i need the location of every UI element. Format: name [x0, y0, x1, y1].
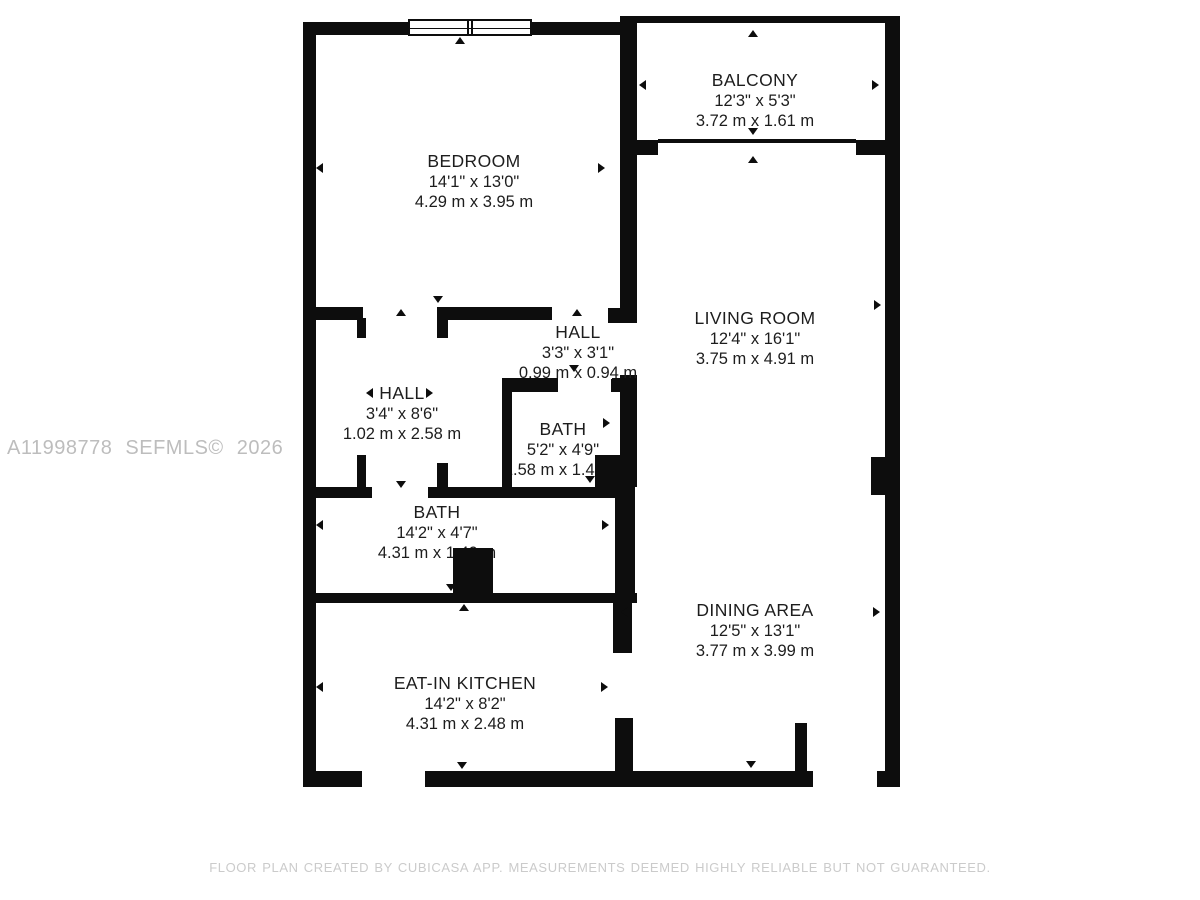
floor-plan: BEDROOM 14'1" x 13'0" 4.29 m x 3.95 m BA… — [0, 0, 1200, 900]
tick-arrow-icon — [872, 80, 879, 90]
room-label-eat-in-kitchen: EAT-IN KITCHEN 14'2" x 8'2" 4.31 m x 2.4… — [394, 673, 536, 735]
tick-arrow-icon — [396, 309, 406, 316]
wall-central-lower — [615, 487, 635, 603]
tick-arrow-icon — [459, 604, 469, 611]
room-dims-imperial: 12'5" x 13'1" — [696, 621, 814, 642]
wall-right-pilaster — [871, 457, 885, 495]
tick-arrow-icon — [601, 682, 608, 692]
wall-balcony-left-and-central-upper — [620, 16, 637, 323]
wall-closet-stub-tl — [357, 318, 366, 338]
wall-bedroom-bottom-left — [303, 307, 363, 320]
tick-arrow-icon — [457, 762, 467, 769]
wall-central-foot — [608, 308, 620, 323]
room-label-hall: HALL 3'4" x 8'6" 1.02 m x 2.58 m — [343, 383, 461, 445]
wall-exterior-bottom-left — [303, 771, 362, 787]
room-label-balcony: BALCONY 12'3" x 5'3" 3.72 m x 1.61 m — [696, 70, 814, 132]
room-name: BEDROOM — [415, 151, 533, 172]
room-name: BATH — [378, 502, 496, 523]
wall-closet-bottom — [303, 487, 372, 498]
wall-closet-stub-br — [437, 463, 448, 488]
room-label-bedroom: BEDROOM 14'1" x 13'0" 4.29 m x 3.95 m — [415, 151, 533, 213]
room-name: EAT-IN KITCHEN — [394, 673, 536, 694]
room-dims-metric: 4.29 m x 3.95 m — [415, 192, 533, 213]
wall-balcony-bottom-right — [856, 140, 885, 155]
wall-bedroom-bottom-mid — [437, 307, 552, 320]
room-dims-metric: 3.77 m x 3.99 m — [696, 641, 814, 662]
tick-arrow-icon — [603, 418, 610, 428]
tick-arrow-icon — [585, 476, 595, 483]
room-dims-metric: 4.31 m x 2.48 m — [394, 714, 536, 735]
tick-arrow-icon — [316, 520, 323, 530]
tick-arrow-icon — [366, 388, 373, 398]
room-label-hall-small: HALL 3'3" x 3'1" 0.99 m x 0.94 m — [519, 322, 637, 384]
room-name: DINING AREA — [696, 600, 814, 621]
wall-closet-stub-bl — [357, 455, 366, 488]
tick-arrow-icon — [426, 388, 433, 398]
wall-exterior-right — [885, 16, 900, 787]
wall-central-chase — [595, 455, 625, 490]
tick-arrow-icon — [504, 418, 511, 428]
room-dims-imperial: 3'3" x 3'1" — [519, 343, 637, 364]
room-dims-metric: 0.99 m x 0.94 m — [519, 363, 637, 384]
wall-exterior-bottom-right — [877, 771, 900, 787]
room-dims-imperial: 14'1" x 13'0" — [415, 172, 533, 193]
room-name: HALL — [343, 383, 461, 404]
tick-arrow-icon — [598, 163, 605, 173]
wall-smallbath-bottom — [502, 487, 625, 498]
tick-arrow-icon — [621, 607, 628, 617]
room-label-living-room: LIVING ROOM 12'4" x 16'1" 3.75 m x 4.91 … — [694, 308, 815, 370]
wall-balcony-railing — [625, 16, 898, 23]
room-dims-metric: 1.02 m x 2.58 m — [343, 424, 461, 445]
tick-arrow-icon — [572, 309, 582, 316]
room-name: HALL — [519, 322, 637, 343]
tick-arrow-icon — [316, 682, 323, 692]
tick-arrow-icon — [873, 607, 880, 617]
room-dims-imperial: 12'3" x 5'3" — [696, 91, 814, 112]
room-label-dining-area: DINING AREA 12'5" x 13'1" 3.77 m x 3.99 … — [696, 600, 814, 662]
room-dims-imperial: 14'2" x 4'7" — [378, 523, 496, 544]
room-name: LIVING ROOM — [694, 308, 815, 329]
tick-arrow-icon — [639, 80, 646, 90]
wall-balcony-bottom-left — [620, 140, 658, 155]
tick-arrow-icon — [746, 761, 756, 768]
tick-arrow-icon — [433, 296, 443, 303]
bedroom-window — [408, 19, 532, 36]
tick-arrow-icon — [602, 520, 609, 530]
mls-watermark: A11998778 SEFMLS© 2026 — [7, 437, 283, 460]
tick-arrow-icon — [455, 37, 465, 44]
wall-bath-top-right-of-door — [428, 487, 502, 498]
room-dims-metric: 3.75 m x 4.91 m — [694, 349, 815, 370]
wall-kitchen-dining-lower — [615, 718, 633, 787]
room-dims-imperial: 14'2" x 8'2" — [394, 694, 536, 715]
balcony-sliding-door — [658, 139, 856, 143]
tick-arrow-icon — [396, 481, 406, 488]
tick-arrow-icon — [316, 163, 323, 173]
footer-disclaimer: FLOOR PLAN CREATED BY CUBICASA APP. MEAS… — [0, 860, 1200, 875]
tick-arrow-icon — [748, 156, 758, 163]
tick-arrow-icon — [748, 128, 758, 135]
room-dims-imperial: 3'4" x 8'6" — [343, 404, 461, 425]
wall-smallbath-left — [502, 378, 512, 487]
wall-exterior-left — [303, 22, 316, 787]
room-dims-imperial: 12'4" x 16'1" — [694, 329, 815, 350]
wall-dining-stub — [795, 723, 807, 771]
tick-arrow-icon — [748, 30, 758, 37]
tick-arrow-icon — [874, 300, 881, 310]
room-name: BALCONY — [696, 70, 814, 91]
wall-closet-stub-tr — [437, 318, 448, 338]
wall-shaft-block — [453, 548, 493, 603]
